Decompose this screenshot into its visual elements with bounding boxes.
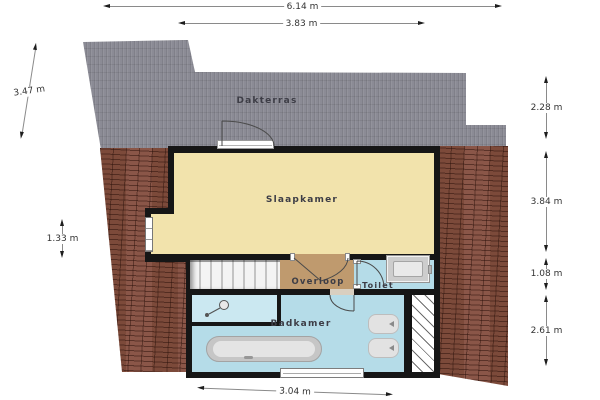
dimension-label: 3.84 m xyxy=(528,197,566,207)
dimension-label: 2.61 m xyxy=(528,326,566,336)
bathtub-drain-icon xyxy=(244,356,253,359)
room-label-toilet: Toilet xyxy=(338,281,418,290)
faucet-icon xyxy=(389,321,394,327)
washbasin-2 xyxy=(368,338,399,358)
toilet-cistern xyxy=(387,256,429,282)
room-label-terrace: Dakterras xyxy=(197,96,337,106)
dimension-label: 1.08 m xyxy=(528,269,566,279)
bedroom-door-opening xyxy=(294,254,348,260)
door-post xyxy=(345,253,350,261)
roof-right xyxy=(438,146,508,386)
dimension-left-window: 1.33 m xyxy=(58,219,67,258)
dimension-top-total: 6.14 m xyxy=(103,2,502,11)
low-ceiling-hatch xyxy=(410,295,434,372)
toilet-tank xyxy=(393,261,423,277)
washbasin-1 xyxy=(368,314,399,334)
dimension-left-terrace: 3.47 m xyxy=(17,42,41,139)
dimension-right-landing: 1.08 m xyxy=(542,258,551,290)
door-post xyxy=(290,253,295,261)
dimension-label: 2.28 m xyxy=(528,103,566,113)
dimension-right-terrace: 2.28 m xyxy=(542,76,551,139)
dimension-label: 3.83 m xyxy=(283,19,321,29)
room-label-bedroom: Slaapkamer xyxy=(232,195,372,205)
shower-floor xyxy=(192,295,280,322)
roof-terrace-area xyxy=(83,40,507,150)
room-label-bathroom: Badkamer xyxy=(231,319,371,329)
bathtub xyxy=(206,336,322,362)
toilet-flush-button xyxy=(428,265,432,274)
dimension-label: 1.33 m xyxy=(44,234,82,244)
dimension-top-terrace: 3.83 m xyxy=(178,19,425,28)
dimension-label: 6.14 m xyxy=(284,2,322,12)
floor-plan: Dakterras Slaapkamer Overloop Toilet Bad… xyxy=(0,0,600,400)
bathroom-window xyxy=(280,368,364,378)
dimension-right-bedroom: 3.84 m xyxy=(542,151,551,252)
dimension-bottom-bathroom: 3.04 m xyxy=(197,384,393,400)
bedroom-window xyxy=(145,217,153,252)
bedroom-floor-extension xyxy=(151,214,177,254)
terrace-door-threshold xyxy=(217,140,274,149)
dimension-label: 3.04 m xyxy=(276,386,314,397)
bathtub-inner xyxy=(213,341,315,357)
dimension-label: 3.47 m xyxy=(10,83,49,98)
door-post xyxy=(353,259,361,264)
dimension-right-bathroom: 2.61 m xyxy=(542,295,551,366)
faucet-icon xyxy=(389,345,394,351)
